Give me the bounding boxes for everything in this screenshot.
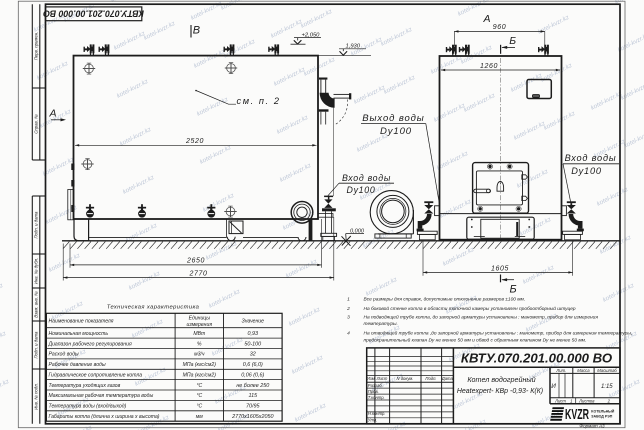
svg-text:На боковой стенке котла в обла: На боковой стенке котла в области топочн… xyxy=(364,305,576,312)
svg-text:Перв. примен.: Перв. примен. xyxy=(34,32,39,61)
svg-text:Изм: Изм xyxy=(367,376,375,381)
svg-text:Расход воды: Расход воды xyxy=(49,352,79,358)
svg-text:Лист: Лист xyxy=(554,399,566,404)
svg-text:Котел водогрейный: Котел водогрейный xyxy=(467,375,535,384)
svg-text:115: 115 xyxy=(249,393,259,399)
svg-text:А: А xyxy=(48,108,56,120)
svg-text:предохранительный клапан Dy н: предохранительный клапан Dy не менее 50 … xyxy=(364,336,587,343)
svg-text:Вход воды: Вход воды xyxy=(565,153,617,163)
svg-text:Гидравлическое сопротивление к: Гидравлическое сопротивление котла xyxy=(49,372,143,378)
svg-text:Лист: Лист xyxy=(376,376,388,381)
svg-text:1: 1 xyxy=(347,296,350,302)
svg-text:Пров.: Пров. xyxy=(368,389,379,394)
svg-text:Т.контр.: Т.контр. xyxy=(368,395,385,400)
svg-text:Подп. и дата: Подп. и дата xyxy=(34,211,39,239)
svg-text:KVZR: KVZR xyxy=(565,406,589,423)
svg-text:см. п. 2: см. п. 2 xyxy=(237,96,281,106)
svg-text:32: 32 xyxy=(250,352,256,358)
svg-text:МПа (кгс/см2): МПа (кгс/см2) xyxy=(183,362,217,368)
svg-text:КВТУ.070.201.00.000 ВО: КВТУ.070.201.00.000 ВО xyxy=(43,9,144,19)
svg-text:Взам. инв. №: Взам. инв. № xyxy=(34,291,39,318)
svg-text:1:15: 1:15 xyxy=(601,384,613,390)
svg-text:Номинальная мощность: Номинальная мощность xyxy=(49,331,109,337)
svg-text:МПа (кгс/см2): МПа (кгс/см2) xyxy=(183,372,217,378)
svg-text:КОТЕЛЬНЫЙ: КОТЕЛЬНЫЙ xyxy=(591,410,614,414)
svg-text:Формат А3: Формат А3 xyxy=(579,423,605,428)
svg-text:1605: 1605 xyxy=(491,265,509,272)
svg-text:2770: 2770 xyxy=(189,270,208,277)
svg-text:2650: 2650 xyxy=(186,257,205,264)
svg-text:КВТУ.070.201.00.000 ВО: КВТУ.070.201.00.000 ВО xyxy=(461,351,613,366)
svg-text:Вход воды: Вход воды xyxy=(342,173,391,183)
svg-text:температуры.: температуры. xyxy=(364,322,398,327)
svg-text:3: 3 xyxy=(347,314,350,320)
svg-text:1260: 1260 xyxy=(480,63,498,70)
svg-text:Листов: Листов xyxy=(578,399,595,404)
svg-text:На отводящей трубе котла ,до з: На отводящей трубе котла ,до запорной ар… xyxy=(364,330,633,337)
svg-text:м3/ч: м3/ч xyxy=(194,352,205,358)
svg-text:Температура уходящих газов: Температура уходящих газов xyxy=(49,383,121,389)
svg-text:50-100: 50-100 xyxy=(244,341,261,347)
svg-text:2520: 2520 xyxy=(185,138,204,145)
svg-text:2770х1605х2050: 2770х1605х2050 xyxy=(231,414,273,420)
svg-text:И: И xyxy=(551,383,556,390)
svg-text:Подп.: Подп. xyxy=(425,376,436,381)
svg-text:измерения: измерения xyxy=(187,322,213,328)
svg-text:Максимальная рабочая температу: Максимальная рабочая температура воды xyxy=(49,393,154,399)
svg-text:не более 250: не более 250 xyxy=(236,383,269,389)
svg-text:Heatexpert- КВр -0,93- К(К): Heatexpert- КВр -0,93- К(К) xyxy=(457,388,543,395)
svg-text:N докум.: N докум. xyxy=(397,376,414,381)
svg-text:Лит.: Лит. xyxy=(555,368,566,373)
svg-text:Рабочее давление воды: Рабочее давление воды xyxy=(49,362,106,368)
svg-text:Утв.: Утв. xyxy=(368,418,378,423)
svg-text:Дата: Дата xyxy=(441,376,454,381)
svg-text:Единицы: Единицы xyxy=(189,315,211,321)
svg-text:0,93: 0,93 xyxy=(248,331,259,337)
svg-text:4: 4 xyxy=(347,331,350,337)
svg-text:А: А xyxy=(482,13,490,25)
svg-text:70/95: 70/95 xyxy=(246,404,260,410)
svg-text:Габариты котла (длинна х ширин: Габариты котла (длинна х ширина х высота… xyxy=(49,414,160,420)
svg-text:Значение: Значение xyxy=(242,319,265,325)
svg-text:Н.контр.: Н.контр. xyxy=(368,411,386,416)
svg-text:°С: °С xyxy=(196,393,202,399)
svg-text:Dy100: Dy100 xyxy=(380,126,412,137)
svg-text:Техническая характеристика: Техническая характеристика xyxy=(107,305,200,311)
svg-text:Инв. № подл.: Инв. № подл. xyxy=(34,383,39,410)
svg-text:1: 1 xyxy=(570,399,572,404)
svg-text:°С: °С xyxy=(196,383,202,389)
svg-text:Б: Б xyxy=(510,284,517,296)
svg-text:Dy100: Dy100 xyxy=(571,166,602,176)
svg-text:На подводящей трубе котла, до: На подводящей трубе котла, до запорной а… xyxy=(364,313,599,320)
svg-text:Б: Б xyxy=(509,35,516,47)
svg-text:Диапазон рабочего регулировани: Диапазон рабочего регулирования xyxy=(48,341,132,347)
svg-text:Все размеры для справок, допус: Все размеры для справок, допустимые откл… xyxy=(364,296,526,302)
svg-text:0,6 (6,0): 0,6 (6,0) xyxy=(243,362,263,368)
svg-text:Разраб.: Разраб. xyxy=(368,383,383,388)
svg-text:Масса: Масса xyxy=(577,368,590,373)
svg-text:Наименование показателя: Наименование показателя xyxy=(49,319,114,325)
svg-text:мм: мм xyxy=(196,414,203,420)
svg-text:°С: °С xyxy=(196,404,202,410)
svg-text:ЗАВОД РЭП: ЗАВОД РЭП xyxy=(591,415,612,419)
svg-text:Инв. № дубл.: Инв. № дубл. xyxy=(34,258,39,284)
svg-text:960: 960 xyxy=(493,24,506,31)
svg-text:0,06 (0,6): 0,06 (0,6) xyxy=(241,372,264,378)
svg-text:МВт: МВт xyxy=(193,331,205,337)
svg-text:%: % xyxy=(197,341,202,347)
svg-text:Масштаб: Масштаб xyxy=(597,368,617,373)
svg-text:Справ. №: Справ. № xyxy=(34,114,39,134)
svg-text:В: В xyxy=(193,25,200,37)
svg-text:Dy100: Dy100 xyxy=(347,185,376,195)
svg-text:Подп. и дата: Подп. и дата xyxy=(34,331,39,359)
svg-text:Выход воды: Выход воды xyxy=(362,113,424,124)
svg-text:2: 2 xyxy=(346,306,350,312)
svg-text:Температура воды (вход/выход): Температура воды (вход/выход) xyxy=(49,404,127,410)
